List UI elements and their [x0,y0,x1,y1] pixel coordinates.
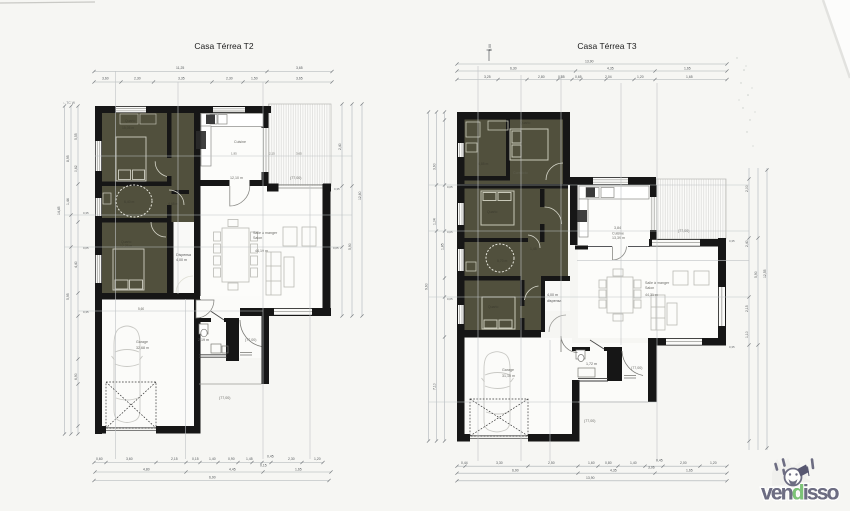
svg-text:1,45: 1,45 [246,457,253,461]
svg-text:vendisso: vendisso [761,482,839,505]
svg-text:3,06: 3,06 [648,466,655,470]
svg-text:6,90: 6,90 [209,476,216,480]
svg-text:1,85: 1,85 [441,243,445,250]
svg-text:(77,00): (77,00) [584,419,595,423]
svg-text:2,50: 2,50 [548,461,555,465]
svg-text:4,80: 4,80 [143,468,150,472]
svg-text:Salle à manger: Salle à manger [645,281,670,285]
svg-text:1,45: 1,45 [530,247,537,251]
svg-text:2,80: 2,80 [538,75,545,79]
svg-text:Salon: Salon [253,236,262,240]
svg-text:1,72 m: 1,72 m [586,362,597,366]
svg-text:12,60: 12,60 [358,191,362,200]
svg-text:2,40: 2,40 [745,240,749,247]
svg-text:7,10: 7,10 [433,383,437,390]
svg-text:dispensa: dispensa [547,299,561,303]
svg-text:2,15: 2,15 [269,152,275,156]
svg-text:Garage: Garage [502,368,514,372]
svg-text:Quarto: Quarto [520,121,530,125]
svg-text:15,05 m: 15,05 m [122,126,134,130]
svg-text:4,45: 4,45 [229,468,236,472]
svg-text:∟TC W: ∟TC W [63,101,76,105]
svg-text:0,35: 0,35 [83,310,89,314]
svg-text:(77,00): (77,00) [219,396,230,400]
svg-text:4,00 m: 4,00 m [176,258,187,262]
svg-text:31,10 m: 31,10 m [502,374,515,378]
svg-text:0,35: 0,35 [83,211,89,215]
svg-text:Quarto: Quarto [488,305,498,309]
svg-text:6,40 m: 6,40 m [124,200,135,204]
svg-text:44,31 m: 44,31 m [645,293,658,297]
svg-text:3,65: 3,65 [296,77,303,81]
svg-text:2,40: 2,40 [338,143,342,150]
svg-text:4,85 m: 4,85 m [478,162,489,166]
svg-text:3,60: 3,60 [102,77,109,81]
svg-text:12,25 m: 12,25 m [120,244,132,248]
svg-text:Salon: Salon [645,286,654,290]
svg-text:13,90: 13,90 [585,60,594,64]
svg-text:Cuisine: Cuisine [234,140,246,144]
svg-text:6,30: 6,30 [510,67,517,71]
svg-text:5,95: 5,95 [66,293,70,300]
svg-text:5,55: 5,55 [74,133,78,140]
svg-text:1,44: 1,44 [66,198,70,205]
svg-text:5,90: 5,90 [754,271,758,278]
svg-text:32,68 m: 32,68 m [136,346,149,350]
svg-text:0,05: 0,05 [83,246,89,250]
svg-text:3,60: 3,60 [433,163,437,170]
svg-text:1,20: 1,20 [314,457,321,461]
svg-text:Quarto: Quarto [487,210,497,214]
svg-text:1,65: 1,65 [295,468,302,472]
svg-text:1,40: 1,40 [209,457,216,461]
svg-text:1,20: 1,20 [637,75,644,79]
svg-text:13,39 m: 13,39 m [612,236,625,240]
svg-text:0,60: 0,60 [96,457,103,461]
svg-text:0,44: 0,44 [461,461,468,465]
svg-text:2,30: 2,30 [226,77,233,81]
svg-text:12,55: 12,55 [763,269,767,278]
svg-text:3,25: 3,25 [484,75,491,79]
svg-text:0,15: 0,15 [192,457,199,461]
svg-text:12,10 m: 12,10 m [230,176,243,180]
svg-text:0,45: 0,45 [656,459,663,463]
svg-text:Casa Térrea T2: Casa Térrea T2 [194,41,253,51]
svg-text:1,40: 1,40 [630,461,637,465]
svg-text:Salle à manger: Salle à manger [253,231,278,235]
svg-text:4,65 m: 4,65 m [168,202,179,206]
svg-text:Corridoio: Corridoio [513,171,528,175]
svg-text:0,65: 0,65 [575,75,582,79]
svg-text:0,35: 0,35 [729,239,735,243]
svg-text:3,60: 3,60 [126,457,133,461]
svg-text:1,95: 1,95 [231,152,237,156]
svg-text:14,45: 14,45 [57,206,61,215]
svg-text:9,60: 9,60 [425,283,429,290]
svg-text:2,15: 2,15 [171,457,178,461]
svg-text:2,00: 2,00 [745,185,749,192]
svg-text:2,04: 2,04 [605,75,612,79]
svg-text:1,65: 1,65 [686,469,693,473]
svg-text:2,19 m: 2,19 m [198,338,209,342]
svg-text:1,65: 1,65 [684,67,691,71]
svg-text:3,65: 3,65 [296,152,302,156]
svg-text:1,04: 1,04 [433,218,437,225]
svg-text:Garage: Garage [136,340,148,344]
svg-text:(77,00): (77,00) [245,338,256,342]
svg-text:Quarto: Quarto [125,119,135,123]
svg-text:6,90: 6,90 [512,469,519,473]
svg-text:0,05: 0,05 [333,246,339,250]
svg-text:2,30: 2,30 [288,457,295,461]
svg-text:5,90: 5,90 [348,243,352,250]
svg-text:5,60: 5,60 [138,307,144,311]
svg-text:8,95: 8,95 [66,155,70,162]
svg-text:3,65: 3,65 [296,66,303,70]
svg-text:0,80: 0,80 [605,461,612,465]
svg-text:3,30: 3,30 [496,461,503,465]
svg-text:4,00 m: 4,00 m [547,293,558,297]
svg-text:1,20: 1,20 [710,461,717,465]
svg-text:2,30: 2,30 [134,77,141,81]
svg-text:13,90: 13,90 [586,476,595,480]
svg-text:0,05: 0,05 [447,230,453,234]
svg-text:(77,00): (77,00) [631,366,642,370]
svg-text:4,35: 4,35 [607,67,614,71]
svg-text:0,62: 0,62 [74,165,78,172]
svg-text:1,50: 1,50 [251,77,258,81]
svg-text:11,25: 11,25 [176,66,184,70]
svg-text:Casa Térrea T3: Casa Térrea T3 [577,41,636,51]
svg-text:0,90: 0,90 [228,457,235,461]
svg-text:1,10: 1,10 [745,331,749,338]
svg-text:0,05: 0,05 [447,297,453,301]
svg-text:1,60: 1,60 [588,461,595,465]
svg-text:0,05: 0,05 [447,185,453,189]
svg-text:2,00: 2,00 [680,461,687,465]
svg-text:4,40: 4,40 [74,261,78,268]
svg-text:0,35: 0,35 [729,345,735,349]
svg-text:0,00: 0,00 [488,44,492,51]
svg-text:Cuisine: Cuisine [612,232,624,236]
svg-text:2,15: 2,15 [745,305,749,312]
svg-text:0,45: 0,45 [267,455,274,459]
svg-text:1,65: 1,65 [686,75,693,79]
svg-text:(77,00): (77,00) [290,176,301,180]
svg-text:4,35: 4,35 [610,469,617,473]
svg-text:44,19 m: 44,19 m [255,249,268,253]
svg-text:5,70 m: 5,70 m [497,259,508,263]
svg-text:0,15: 0,15 [260,464,267,468]
svg-text:0,35: 0,35 [334,187,340,191]
svg-text:6,90: 6,90 [74,373,78,380]
svg-text:3,35: 3,35 [178,77,185,81]
svg-text:3,84: 3,84 [614,226,621,230]
